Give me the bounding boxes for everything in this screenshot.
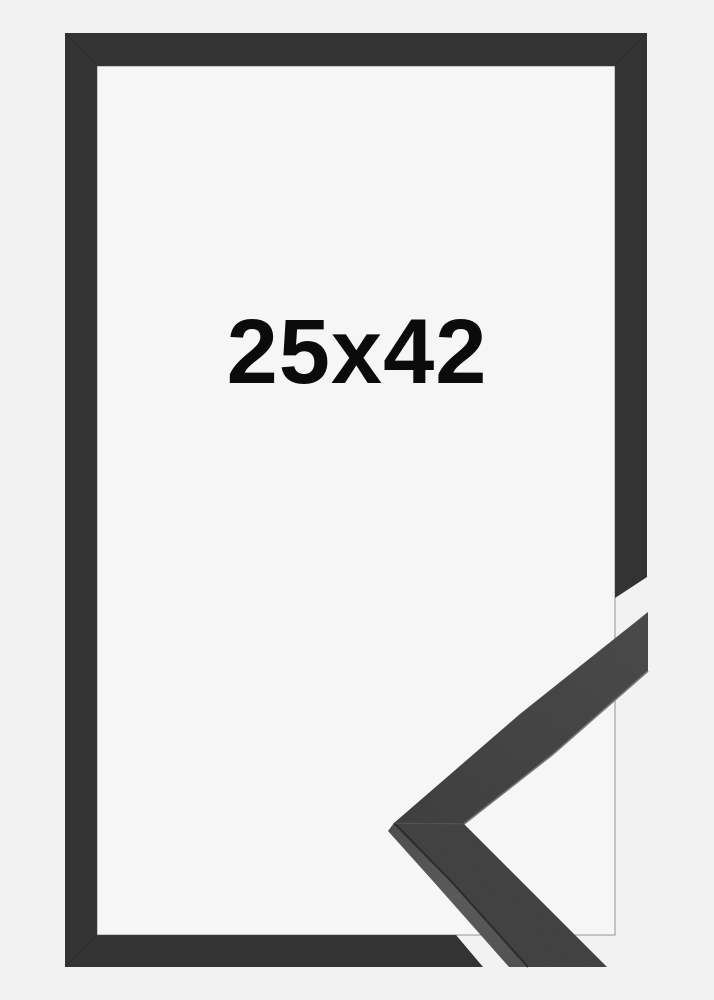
product-image: 25x42 — [0, 0, 714, 1000]
frame-border-left — [65, 33, 97, 967]
frame-border-bottom — [65, 935, 483, 967]
frame-border-top — [65, 33, 647, 66]
size-label: 25x42 — [227, 301, 488, 403]
frame-opening — [97, 66, 615, 935]
frame-product-photo: 25x42 — [0, 0, 714, 1000]
frame-border-right — [615, 33, 647, 598]
